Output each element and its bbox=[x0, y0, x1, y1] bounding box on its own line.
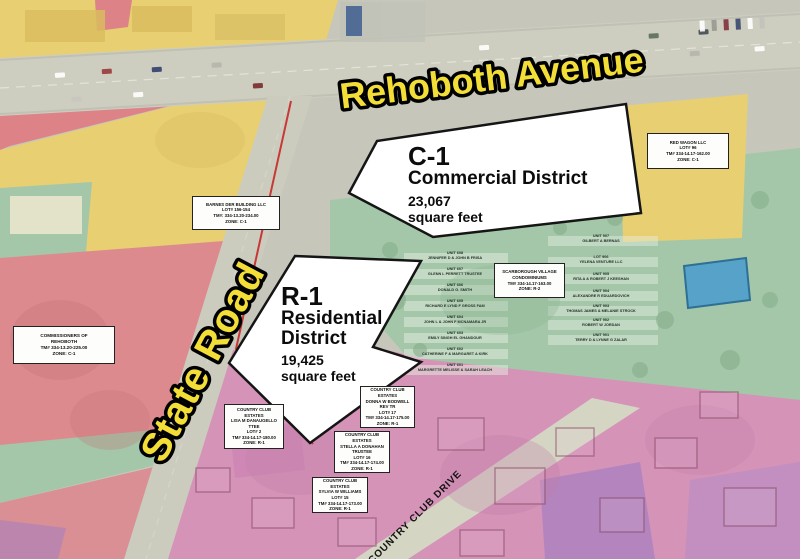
parcel-box-red-wagon: RED WAGON LLC LOT# 96 TM# 334-14.17-162.… bbox=[647, 133, 729, 169]
parcel-box-commissioners: COMMISSIONERS OF REHOBOTH TM# 334-13.20-… bbox=[13, 326, 115, 364]
parcel-box-cc-lot2: COUNTRY CLUB ESTATES LISA M DANAUGELLO T… bbox=[224, 404, 284, 449]
condo-unit-label: UNIT 604 JOHN L & JOHN F MCNAMARA JR bbox=[400, 315, 510, 325]
r1-name-line1: Residential bbox=[281, 309, 382, 329]
parcel-box-scarborough: SCARBOROUGH VILLAGE CONDOMINIUMS TM# 334… bbox=[494, 263, 565, 298]
swimming-pool bbox=[684, 258, 750, 308]
c1-name: Commercial District bbox=[408, 169, 588, 189]
condo-unit-label: UNIT 902 ROBERT W JORDAN bbox=[546, 318, 656, 328]
r1-name-line2: District bbox=[281, 329, 382, 349]
r1-area: 19,425 bbox=[281, 352, 382, 368]
zoning-map: Rehoboth Avenue State Road COUNTRY CLUB … bbox=[0, 0, 800, 559]
condo-unit-label: UNIT 603 EMILY SINGH EL GHANDOUR bbox=[400, 331, 510, 341]
c1-area: 23,067 bbox=[408, 193, 588, 209]
c1-area-unit: square feet bbox=[408, 209, 588, 225]
condo-unit-label: UNIT 608 JENNIFER D & JOHN B FRISA bbox=[400, 251, 510, 261]
parcel-box-cc-lot15: COUNTRY CLUB ESTATES SYLVIA W WILLIAMS L… bbox=[312, 477, 368, 513]
r1-code: R-1 bbox=[281, 283, 382, 309]
parcel-box-barnes: BARNES DER BUILDING LLC LOT# 156-154 TM#… bbox=[192, 196, 280, 230]
condo-unit-label: UNIT 605 RICHARD E LYND F GROSS FAM bbox=[400, 299, 510, 309]
condo-unit-label: UNIT 901 TERRY D & LYNNE G ZALAR bbox=[546, 333, 656, 343]
condo-unit-label: UNIT 601 MARGRETTE MELISSE & SARAH LEACH bbox=[400, 363, 510, 373]
c1-district-label: C-1 Commercial District 23,067 square fe… bbox=[408, 143, 588, 225]
parcel-box-cc-lot17: COUNTRY CLUB ESTATES DONNA W BODWELL REV… bbox=[360, 386, 415, 428]
r1-district-label: R-1 Residential District 19,425 square f… bbox=[281, 283, 382, 384]
condo-unit-label: UNIT 602 CATHERINE F & MARGARET A KIRK bbox=[400, 347, 510, 357]
condo-unit-label: UNIT 907 GILBERT A BERNAS bbox=[546, 234, 656, 244]
r1-area-unit: square feet bbox=[281, 368, 382, 384]
c1-code: C-1 bbox=[408, 143, 588, 169]
condo-unit-label: UNIT 903 THOMAS JAMES & MELANIE STROCK bbox=[546, 304, 656, 314]
parcel-box-cc-lot16: COUNTRY CLUB ESTATES STELLA A DONAHAN TR… bbox=[334, 431, 390, 473]
